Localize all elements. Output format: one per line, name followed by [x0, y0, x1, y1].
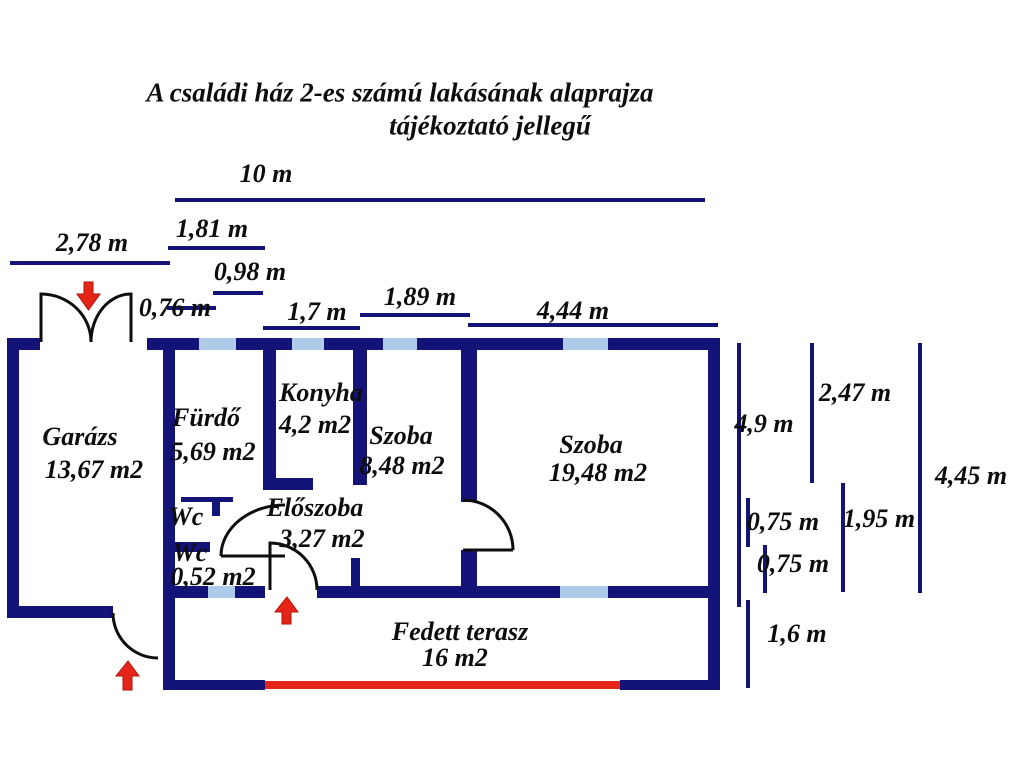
dim-line-terrace-height	[746, 600, 750, 688]
floor-plan: A családi ház 2-es számú lakásának alapr…	[0, 0, 1024, 768]
dim-line-right-height-full	[737, 343, 741, 607]
room-label-terrace-name: Fedett terasz	[392, 619, 529, 645]
dim-line-garage-width	[10, 261, 170, 265]
room-label-wc-lower-area: 0,52 m2	[170, 564, 255, 590]
dim-label-lower-height: 1,95 m	[843, 506, 915, 532]
room-label-room-large-name: Szoba	[559, 432, 623, 458]
room-label-kitchen-name: Konyha	[279, 380, 363, 406]
wall-segment	[163, 680, 265, 690]
dim-label-bathroom-width: 1,81 m	[176, 216, 248, 242]
room-label-wc-upper: Wc	[169, 504, 204, 530]
wall-kitchen-bottom	[263, 478, 313, 490]
dim-label-kitchen-width: 1,7 m	[287, 299, 346, 325]
garage-side-door-arc	[113, 613, 158, 658]
dim-label-room-large-height: 2,47 m	[819, 380, 891, 406]
terrace-open-edge	[265, 681, 620, 689]
room-label-room-large-area: 19,48 m2	[549, 460, 647, 486]
dim-label-total-width: 10 m	[240, 161, 293, 187]
wall-room-room-lower	[461, 550, 477, 590]
wall-wc-top-stub	[212, 497, 220, 516]
window	[563, 338, 608, 350]
wall-segment	[7, 606, 113, 618]
window	[292, 338, 324, 350]
entrance-arrow-garage-icon	[77, 282, 100, 310]
plan-title-line2: tájékoztató jellegű	[389, 113, 591, 140]
wall-bathroom-kitchen	[263, 350, 276, 487]
plan-title-line1: A családi ház 2-es számú lakásának alapr…	[146, 80, 653, 107]
entrance-arrow-terrace-icon	[275, 597, 298, 624]
room-label-bathroom-area: 5,69 m2	[170, 439, 255, 465]
dim-line-kitchen-width	[263, 326, 360, 330]
wall-segment	[620, 680, 720, 690]
room-label-room-small-name: Szoba	[369, 423, 433, 449]
room-label-kitchen-area: 4,2 m2	[279, 412, 351, 438]
wall-kitchen-room-stub	[351, 558, 360, 590]
dim-label-terrace-height: 1,6 m	[767, 621, 826, 647]
room-label-hallway-area: 3,27 m2	[279, 526, 364, 552]
dim-line-lower-height	[841, 483, 845, 592]
dim-label-offset-b: 0,75 m	[757, 551, 829, 577]
window	[383, 338, 417, 350]
dim-label-room-small-width: 1,89 m	[384, 284, 456, 310]
dim-label-offset-a: 0,75 m	[747, 509, 819, 535]
dim-line-bathroom-width	[168, 246, 265, 250]
dim-line-total-height-right	[918, 343, 922, 593]
dim-label-window-width: 0,98 m	[214, 259, 286, 285]
room-label-garage-name: Garázs	[42, 424, 117, 450]
room-label-garage-area: 13,67 m2	[45, 457, 143, 483]
wall-segment	[608, 586, 720, 598]
room-label-bathroom-name: Fürdő	[172, 405, 240, 431]
wall-room-room	[461, 350, 477, 502]
wall-segment	[324, 338, 383, 350]
room-label-terrace-area: 16 m2	[422, 645, 488, 671]
dim-line-room-large-height	[810, 343, 814, 483]
dim-label-garage-door-width: 0,76 m	[139, 295, 211, 321]
dim-line-total-width	[175, 198, 705, 202]
window	[199, 338, 236, 350]
garage-door-right-leaf	[91, 294, 131, 342]
dim-line-window-width	[213, 291, 263, 295]
dim-label-room-large-width: 4,44 m	[537, 298, 609, 324]
hallway-room-door	[463, 500, 513, 550]
wall-segment	[708, 338, 720, 690]
window	[560, 586, 608, 598]
wall-segment	[7, 338, 19, 618]
room-label-hallway-name: Előszoba	[267, 495, 364, 521]
dim-label-garage-width: 2,78 m	[56, 230, 128, 256]
entrance-arrow-side-icon	[116, 661, 139, 690]
dim-line-room-small-width	[360, 313, 470, 317]
wall-segment	[163, 590, 175, 690]
wall-segment	[608, 338, 720, 350]
wall-segment	[236, 338, 292, 350]
wall-segment	[417, 338, 563, 350]
room-label-room-small-area: 8,48 m2	[359, 453, 444, 479]
dim-label-right-height-full: 4,9 m	[734, 411, 793, 437]
dim-label-total-height-right: 4,45 m	[935, 463, 1007, 489]
